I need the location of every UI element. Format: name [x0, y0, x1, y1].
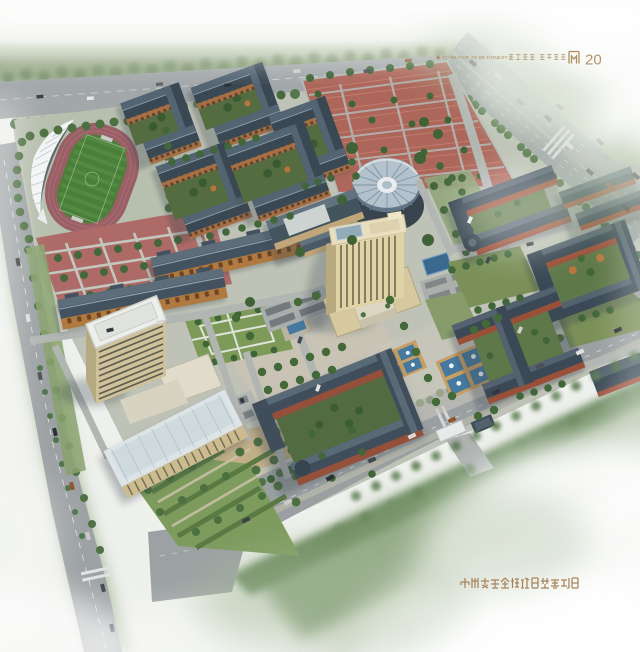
svg-text:TO BE FAIR TO BE HONEST /: TO BE FAIR TO BE HONEST / [442, 55, 511, 61]
svg-text:20: 20 [585, 52, 602, 69]
